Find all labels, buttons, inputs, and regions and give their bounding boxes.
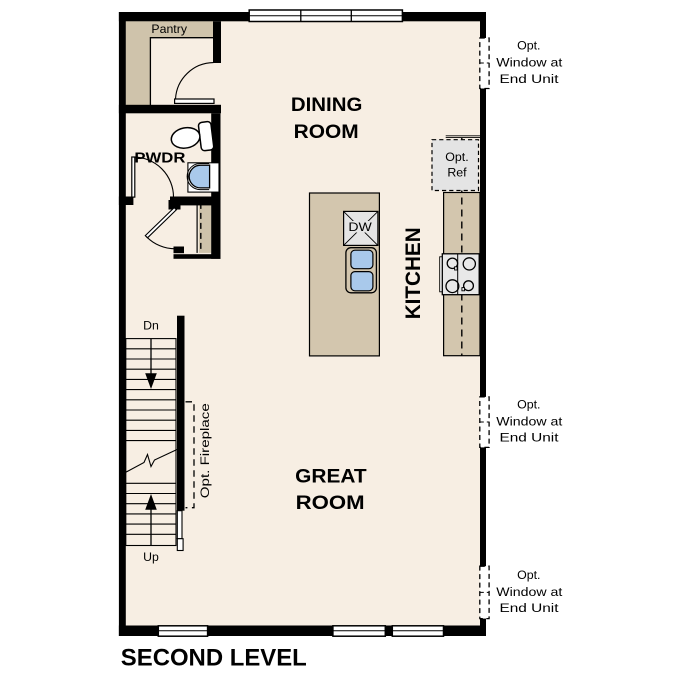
svg-text:KITCHEN: KITCHEN: [402, 227, 425, 319]
svg-text:Window at: Window at: [496, 414, 563, 428]
svg-text:PWDR: PWDR: [134, 151, 186, 167]
svg-text:DW: DW: [348, 220, 372, 234]
svg-text:ROOM: ROOM: [294, 122, 359, 143]
svg-text:SECOND LEVEL: SECOND LEVEL: [121, 644, 307, 671]
svg-text:Ref: Ref: [447, 165, 467, 179]
svg-text:Opt. Fireplace: Opt. Fireplace: [198, 403, 212, 498]
svg-text:Dn: Dn: [143, 318, 159, 332]
svg-text:DINING: DINING: [291, 95, 363, 116]
svg-text:Up: Up: [143, 550, 159, 564]
svg-text:Window at: Window at: [496, 55, 563, 69]
svg-text:End Unit: End Unit: [500, 601, 560, 615]
svg-text:Opt.: Opt.: [517, 568, 540, 582]
svg-text:End Unit: End Unit: [500, 72, 560, 86]
svg-text:Window at: Window at: [496, 585, 563, 599]
svg-text:ROOM: ROOM: [296, 492, 365, 514]
svg-text:Opt.: Opt.: [517, 397, 540, 411]
svg-text:Opt.: Opt.: [445, 150, 468, 164]
svg-text:Opt.: Opt.: [517, 39, 540, 53]
svg-text:End Unit: End Unit: [500, 430, 560, 444]
svg-text:GREAT: GREAT: [295, 466, 367, 488]
svg-text:Pantry: Pantry: [151, 22, 187, 36]
